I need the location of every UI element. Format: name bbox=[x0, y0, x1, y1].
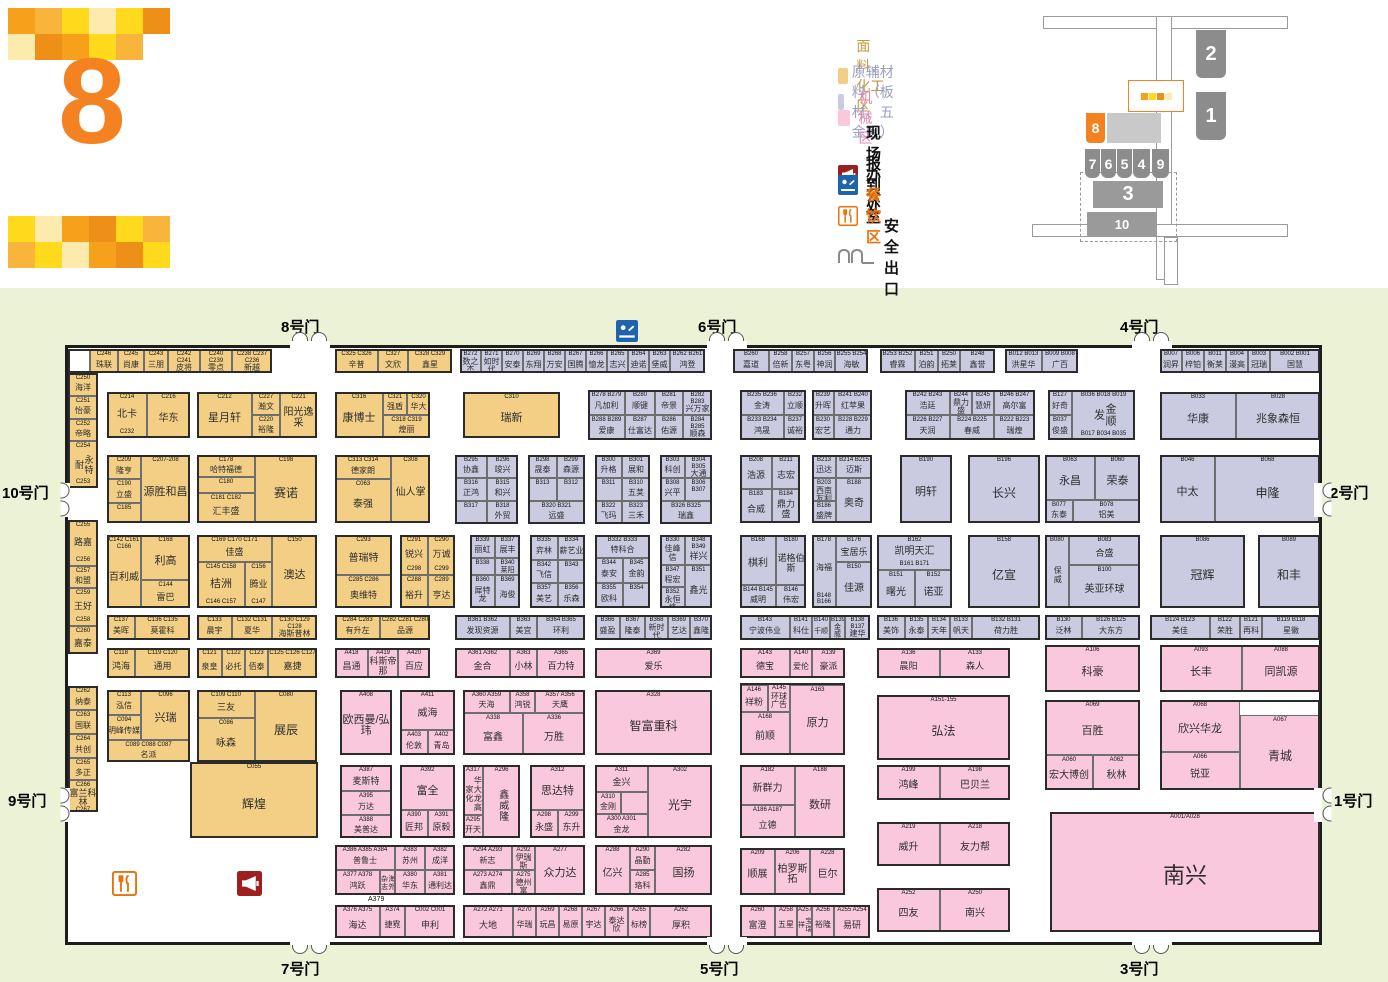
booth-code: C246 bbox=[91, 350, 117, 358]
booth-name: 展和 bbox=[628, 464, 644, 477]
booth-name: 万诚 bbox=[432, 544, 450, 567]
booth-B146: B146伟宏 bbox=[776, 585, 806, 608]
booth-A376: A376 A375海达 bbox=[335, 905, 380, 938]
booth-name: 东升 bbox=[562, 819, 580, 837]
booth-code: C284 C283 bbox=[336, 616, 379, 624]
booth-code: A377 A378 bbox=[336, 871, 379, 879]
booth-B265: B265志兴 bbox=[607, 349, 628, 373]
booth-A060: A060宏大博创 bbox=[1045, 755, 1093, 790]
booth-code: A068 bbox=[1161, 701, 1239, 709]
gate-label-5号门: 5号门 bbox=[700, 958, 738, 979]
booth-A257: A257宝瑞祥 bbox=[797, 905, 812, 938]
booth-code: A390 bbox=[401, 811, 427, 819]
booth-name: 源胜和昌 bbox=[144, 464, 188, 522]
booth-A290: A290晶勤 bbox=[630, 845, 655, 870]
booth-code: B232 bbox=[785, 391, 805, 399]
booth-B248: B248鑫誉 bbox=[960, 349, 995, 373]
booth-code: C308 bbox=[392, 456, 429, 464]
booth-B135: B135永泰 bbox=[905, 615, 928, 640]
booth-B286: B286佑源 bbox=[655, 415, 683, 440]
booth-code: C262 bbox=[69, 687, 97, 695]
booth-code: A270 bbox=[514, 906, 535, 914]
booth-code: C256 bbox=[69, 557, 97, 565]
booth-name: 慧妍 bbox=[975, 399, 991, 414]
booth-name: 鑫誉 bbox=[970, 358, 986, 372]
legend-label: 安全出口 bbox=[884, 215, 899, 299]
booth-name: 佳源 bbox=[844, 571, 864, 607]
booth-C310: C310瑞新 bbox=[463, 392, 560, 438]
booth-name: 东泰 bbox=[1051, 509, 1067, 522]
booth-A069: A069百胜 bbox=[1045, 700, 1140, 755]
booth-name: 路嘉 bbox=[74, 529, 92, 558]
booth-C285: C285 C286奥维特 bbox=[335, 575, 392, 608]
booth-C291: C291锐兴C298 bbox=[400, 535, 428, 575]
booth-B033: B033华康 bbox=[1160, 392, 1236, 440]
booth-name: 富兰科林 bbox=[69, 789, 97, 808]
booth-B251: B251泊韵 bbox=[915, 349, 938, 373]
booth-B126: B126 B125大东方 bbox=[1082, 615, 1140, 640]
booth-code: C327 bbox=[379, 350, 407, 358]
booth-code: B281 bbox=[656, 391, 682, 399]
booth-code: B136 bbox=[878, 616, 904, 624]
booth-name: 宏艺 bbox=[815, 424, 831, 439]
logo-square bbox=[143, 34, 170, 60]
booth-name: 荣泰 bbox=[1107, 464, 1129, 499]
booth-B367: B367隆泰 bbox=[620, 615, 645, 640]
booth-code: C291 bbox=[401, 536, 427, 544]
booth-name: 国腾 bbox=[568, 358, 584, 372]
booth-name: 海洋 bbox=[75, 382, 91, 395]
booth-name: 展辰 bbox=[274, 699, 298, 761]
booth-name: 兴平 bbox=[665, 487, 681, 500]
booth-A420: A420百应 bbox=[398, 648, 430, 678]
booth-name: 腾业 bbox=[249, 571, 267, 600]
logo-square bbox=[143, 8, 170, 34]
booth-B237: B237诚裕 bbox=[784, 415, 806, 440]
booth-name: 同凯源 bbox=[1265, 654, 1298, 691]
booth-name: 宝居乐 bbox=[840, 544, 867, 561]
gate-opening bbox=[290, 937, 330, 945]
booth-B235: B235 B236金涛 bbox=[740, 390, 784, 415]
booth-A317: A317华大龙高家化 bbox=[463, 765, 483, 815]
minimap-hall-3: 3 bbox=[1093, 181, 1163, 208]
booth-code: C109 C110 bbox=[198, 691, 254, 699]
booth-B363: B363美宜 bbox=[510, 615, 537, 640]
booth-name: 玩昌 bbox=[540, 914, 556, 937]
booth-B368: B368新时代 bbox=[645, 615, 668, 640]
booth-B009: B009 B008广百 bbox=[1042, 349, 1078, 373]
booth-code: B006 bbox=[1183, 350, 1203, 358]
booth-name: 保威 bbox=[1053, 544, 1061, 607]
booth-B180: B180诺格伯斯 bbox=[776, 535, 806, 585]
booth-A395: A395万达 bbox=[340, 791, 392, 815]
booth-code: A168 bbox=[741, 713, 789, 721]
booth-name: 秋林 bbox=[1107, 764, 1127, 789]
booth-B258: B258倍新 bbox=[769, 349, 792, 373]
booth-name: 万胜 bbox=[544, 722, 564, 754]
booth-code: B214 B215 bbox=[837, 456, 871, 464]
booth-code: A062 bbox=[1094, 756, 1139, 764]
booth-B122: B122荣胜 bbox=[1210, 615, 1240, 640]
booth-code: C169 C170 C171 bbox=[198, 536, 271, 544]
booth-A228: A228巨尔 bbox=[810, 848, 845, 895]
booth-A312: A312思达特 bbox=[530, 765, 585, 810]
booth-B320: B320 B321远盛 bbox=[528, 501, 585, 524]
booth-name: 瑞新 bbox=[501, 401, 523, 437]
booth-code: A255 A254 bbox=[835, 906, 869, 914]
booth-name: 奥奇 bbox=[844, 487, 864, 522]
booth-code: B311 bbox=[596, 479, 621, 487]
booth-name: 文欣 bbox=[385, 358, 401, 372]
booth-B222: B222 B223瑞煌 bbox=[994, 415, 1035, 440]
booth-B355: B355欧科 bbox=[595, 583, 623, 608]
booth-C168: C168利高 bbox=[141, 535, 190, 580]
booth-name: 华大 bbox=[411, 401, 427, 414]
booth-C255: C255路嘉C256 bbox=[68, 520, 98, 566]
booth-code: C310 bbox=[464, 393, 559, 401]
booth-name: 大地 bbox=[479, 914, 497, 937]
booth-name: 广百 bbox=[1052, 358, 1068, 372]
booth-name: 成洋 bbox=[432, 854, 448, 869]
booth-C265: C265多正 bbox=[68, 758, 98, 780]
booth-code: B263 bbox=[650, 350, 669, 358]
booth-name: 天鹰 bbox=[552, 699, 568, 712]
booth-A145: A145环球广告 bbox=[768, 683, 790, 712]
booth-name: 千顺 bbox=[814, 624, 828, 639]
booth-code: C168 bbox=[142, 536, 189, 544]
booth-code: B246 B247 bbox=[995, 391, 1034, 399]
booth-name: 晶勤 bbox=[635, 854, 651, 869]
gate-label-7号门: 7号门 bbox=[281, 958, 319, 979]
booth-A338: A338富鑫 bbox=[463, 713, 523, 755]
booth-name: 原毅 bbox=[432, 819, 450, 837]
booth-name: 小林 bbox=[514, 657, 532, 677]
booth-code: A311 bbox=[596, 766, 647, 774]
booth-C221: C221阳光逸采 bbox=[280, 392, 317, 438]
booth-name: 嘉泰 bbox=[74, 635, 92, 653]
booth-code: B121 bbox=[1241, 616, 1261, 624]
logo-square bbox=[8, 242, 35, 268]
booth-code: B258 bbox=[770, 350, 791, 358]
booth-B304: B304 B305大通 bbox=[685, 455, 712, 478]
booth-B272: B272数之杰 bbox=[460, 349, 481, 373]
booth-B226: B226 B227天润 bbox=[905, 415, 950, 440]
logo-square bbox=[62, 8, 89, 34]
booth-name: 瑞煌 bbox=[1007, 424, 1023, 439]
booth-B178: B178海福B148 B166 bbox=[812, 535, 836, 608]
booth-name: 金兴 bbox=[612, 774, 630, 791]
logo-square bbox=[89, 216, 116, 242]
booth-name: 锐亚 bbox=[1190, 761, 1210, 789]
booth-code: B295 bbox=[456, 456, 486, 464]
booth-code: A363 bbox=[511, 649, 536, 657]
booth-B316: B316正鸿 bbox=[455, 478, 487, 501]
booth-code: B130 bbox=[1046, 616, 1081, 624]
booth-A062: A062秋林 bbox=[1093, 755, 1140, 790]
booth-name: 迪诺 bbox=[631, 358, 647, 372]
booth-B298: B298晟泰 bbox=[528, 455, 557, 478]
booth-C207-208: C207-208源胜和昌 bbox=[141, 455, 190, 523]
booth-C122: C122必托 bbox=[222, 648, 245, 678]
booth-code: C147 bbox=[246, 599, 271, 607]
booth-B214: B214 B215迈斯 bbox=[836, 455, 872, 478]
booth-code: B287 bbox=[626, 416, 654, 424]
booth-name: 金龙 bbox=[614, 823, 630, 837]
booth-code: C146 C157 bbox=[198, 599, 244, 607]
booth-code: A336 bbox=[524, 714, 584, 722]
booth-name: 嘉捷 bbox=[283, 657, 301, 677]
booth-name: 程宏 bbox=[665, 574, 681, 586]
minimap-hall-7: 7 bbox=[1085, 149, 1100, 178]
booth-code: B143 bbox=[741, 616, 789, 624]
booth-name: 泰达欣 bbox=[606, 914, 627, 937]
booth-B339: B339丽虹 bbox=[470, 535, 495, 558]
booth-B011: B011衡莱 bbox=[1204, 349, 1226, 373]
booth-C150: C150澳达 bbox=[272, 535, 317, 608]
booth-C156: C156腾业C147 bbox=[245, 562, 272, 608]
booth-C327: C327文欣 bbox=[378, 349, 408, 373]
booth-name: 爱乐 bbox=[644, 657, 662, 677]
booth-code: C132 C131 bbox=[233, 616, 271, 624]
booth-name: 西南友利 bbox=[813, 487, 835, 501]
booth-code: A088 bbox=[1243, 646, 1319, 654]
booth-name: 厚积 bbox=[672, 914, 690, 937]
booth-name: 青城 bbox=[1268, 724, 1292, 789]
booth-B139: B139金威龙 bbox=[830, 615, 845, 640]
minimap-road bbox=[1164, 237, 1178, 285]
booth-C257: C257和盟 bbox=[68, 566, 98, 588]
booth-code: A218 bbox=[941, 823, 1009, 831]
booth-B060: B060荣泰 bbox=[1095, 455, 1140, 500]
booth-B152: B152诺亚 bbox=[915, 570, 952, 608]
booth-code: C265 bbox=[69, 759, 97, 767]
booth-name: 友力帮 bbox=[960, 831, 990, 865]
booth-code: B270 bbox=[503, 350, 522, 358]
booth-code: A403 bbox=[401, 731, 427, 739]
booth-A386: A386 A385 A384普鲁士 bbox=[335, 845, 395, 870]
booth-code: B332 B333 bbox=[596, 536, 649, 544]
booth-name: 尚康 bbox=[123, 358, 139, 372]
minimap-hall-4: 4 bbox=[1133, 149, 1150, 178]
booth-code: B299 bbox=[558, 456, 584, 464]
booth-code: C216 bbox=[148, 393, 189, 401]
booth-name: 宝瑞祥 bbox=[797, 914, 812, 937]
booth-name: 泉皇 bbox=[202, 657, 218, 677]
booth-code: C267 bbox=[69, 807, 97, 812]
booth-code: B340 bbox=[496, 559, 519, 567]
booth-name: 德州富 bbox=[513, 879, 534, 895]
booth-code: A228 bbox=[811, 849, 844, 857]
booth-A298: A298永盛 bbox=[530, 810, 558, 838]
gate-opening bbox=[290, 341, 330, 349]
booth-name: 志兴 bbox=[610, 358, 626, 372]
booth-name: 金涛 bbox=[754, 399, 770, 414]
booth-name: 帝略 bbox=[75, 428, 91, 440]
booth-B340: B340莱阳 bbox=[495, 558, 520, 575]
booth-code: A206 bbox=[776, 849, 809, 857]
booth-A282: A282国扬 bbox=[655, 845, 712, 895]
booth-B232: B232立顺 bbox=[784, 390, 806, 415]
booth-C282: C282 C281 C280品源 bbox=[380, 615, 430, 640]
booth-code: B361 B362 bbox=[456, 616, 509, 624]
booth-name: 珞科 bbox=[635, 879, 651, 894]
booth-code: B239 bbox=[813, 391, 833, 399]
booth-name: 科仕 bbox=[793, 624, 809, 639]
booth-code: A257 bbox=[798, 906, 811, 914]
booth-B334: B334薪艺业 bbox=[558, 535, 585, 560]
booth-C262: C262纳泰 bbox=[68, 686, 98, 710]
booth-name: 升格 bbox=[601, 464, 617, 477]
booth-name: 零点 bbox=[208, 364, 224, 372]
logo-square bbox=[35, 216, 62, 242]
booth-A146: A146祥粉 bbox=[740, 685, 768, 712]
booth-name: 威升 bbox=[899, 831, 919, 865]
booth-name: 泰安 bbox=[601, 567, 617, 582]
booth-code: B280 bbox=[626, 391, 654, 399]
booth-code: A143 bbox=[741, 649, 789, 657]
booth-A382: A382成洋 bbox=[425, 845, 455, 870]
booth-code: C119 C120 bbox=[136, 649, 189, 657]
booth-B196: B196长兴 bbox=[968, 455, 1040, 523]
booth-name: 永昌 bbox=[1059, 464, 1081, 499]
booth-A300: A300 A301金龙 bbox=[595, 814, 648, 838]
booth-code: B068 bbox=[1216, 456, 1319, 464]
booth-B299: B299森源 bbox=[557, 455, 585, 478]
booth-name: 如时代 bbox=[482, 358, 501, 373]
booth-name: 众力达 bbox=[544, 854, 577, 894]
booth-name: 通利达 bbox=[428, 879, 452, 894]
booth-code: B303 bbox=[661, 456, 684, 464]
booth-code: C320 bbox=[408, 393, 429, 401]
booth-name: 立德 bbox=[758, 814, 776, 837]
booth-code: B152 bbox=[916, 571, 951, 579]
booth-C246: C246珠联 bbox=[90, 349, 118, 373]
booth-name: 隆亨 bbox=[116, 464, 132, 478]
booth-B347: B347程宏 bbox=[660, 565, 685, 587]
booth-name: 仕富达 bbox=[628, 424, 652, 439]
booth-code: C285 C286 bbox=[336, 576, 391, 584]
booth-B356: B356乐森 bbox=[558, 583, 585, 608]
booth-name: 天年 bbox=[931, 624, 947, 639]
booth-name: 欧科 bbox=[601, 592, 617, 607]
booth-name: 鑫鼎 bbox=[480, 879, 496, 894]
booth-A133: A133森人 bbox=[940, 648, 1010, 678]
booth-code: A198 bbox=[941, 766, 1009, 774]
booth-name: 皮将 bbox=[176, 364, 192, 372]
booth-code: B347 bbox=[661, 566, 684, 574]
logo-square bbox=[62, 242, 89, 268]
booth-B260: B260嘉道 bbox=[733, 349, 769, 373]
booth-C313: C313 C314德家朗 bbox=[335, 455, 391, 479]
booth-code: A252 bbox=[878, 889, 939, 897]
booth-name: 和丰 bbox=[1277, 544, 1301, 607]
booth-code: A387 bbox=[341, 766, 391, 774]
booth-code: A402 bbox=[429, 731, 454, 739]
booth-name: 新时代 bbox=[646, 624, 667, 640]
booth-C290: C290万诚C299 bbox=[428, 535, 455, 575]
booth-name: 海斯普林 bbox=[279, 630, 311, 639]
booth-code: C255 bbox=[69, 521, 97, 529]
booth-B351: B351鑫光 bbox=[685, 565, 712, 608]
booth-name: 阳光逸采 bbox=[281, 401, 316, 437]
booth-C137: C137美晖 bbox=[107, 615, 135, 640]
booth-B287: B287仕富达 bbox=[625, 415, 655, 440]
booth-code: B245 bbox=[973, 391, 993, 399]
booth-name: 强盾 bbox=[387, 401, 403, 414]
booth-name: 星月轩 bbox=[208, 401, 241, 437]
booth-code: B312 bbox=[558, 479, 584, 487]
booth-C118: C118鸿海 bbox=[107, 648, 135, 678]
booth-code: B286 bbox=[656, 416, 682, 424]
booth-name: 欣兴华龙 bbox=[1178, 709, 1222, 751]
booth-name: 泓信 bbox=[116, 699, 132, 714]
booth-code: C298 bbox=[401, 566, 427, 574]
booth-B300: B300升格 bbox=[595, 455, 622, 478]
booth-code: B124 B123 bbox=[1151, 616, 1209, 624]
booth-code: C288 bbox=[401, 576, 427, 584]
booth-B124: B124 B123美佳 bbox=[1150, 615, 1210, 640]
booth-code: A361 A362 bbox=[456, 649, 509, 657]
booth-name: 品源 bbox=[397, 624, 413, 639]
booth-name: 大通 bbox=[691, 470, 707, 478]
booth-name: 犀特龙 bbox=[471, 584, 494, 607]
booth-A381: A381通利达 bbox=[425, 870, 455, 895]
booth-B311: B311 bbox=[595, 478, 622, 501]
booth-C185: C185 bbox=[107, 503, 141, 523]
booth-code: C290 bbox=[429, 536, 454, 544]
booth-A390: A390匠邦 bbox=[400, 810, 428, 838]
booth-name: 五荚 bbox=[628, 487, 644, 500]
gate-label-10号门: 10号门 bbox=[2, 482, 49, 503]
booth-name: 光宇 bbox=[668, 774, 692, 837]
logo-square bbox=[8, 216, 35, 242]
booth-code: C254 bbox=[69, 442, 97, 450]
booth-name: 威海 bbox=[418, 699, 438, 729]
booth-code: B339 bbox=[471, 536, 494, 544]
booth-name: 外贸 bbox=[495, 510, 511, 523]
booth-code: A365 bbox=[538, 649, 584, 657]
booth-code: A145 bbox=[769, 684, 789, 692]
booth-B080: B080保威 bbox=[1045, 535, 1069, 608]
booth-A218: A218友力帮 bbox=[940, 822, 1010, 866]
booth-A266: A266泰达欣 bbox=[605, 905, 628, 938]
booth-name: 佳盛 bbox=[225, 544, 243, 561]
booth-code: A380 bbox=[396, 871, 424, 879]
booth-name: 建华 bbox=[850, 630, 866, 639]
booth-name: 新志 bbox=[480, 854, 496, 869]
booth-name: 鸿晟 bbox=[754, 424, 770, 439]
booth-A136: A136晨阳 bbox=[877, 648, 940, 678]
booth-A418: A418昌通 bbox=[335, 648, 368, 678]
door-swing-icon bbox=[1323, 483, 1332, 499]
booth-B140: B140千顺 bbox=[812, 615, 830, 640]
booth-B151: B151曙光 bbox=[877, 570, 915, 608]
booth-B188: B188奥奇 bbox=[836, 478, 872, 523]
booth-code: B190 bbox=[901, 456, 951, 464]
booth-code: B343 bbox=[559, 561, 584, 569]
booth-B136: B136美饰 bbox=[877, 615, 905, 640]
booth-B250: B250拓莱 bbox=[938, 349, 960, 373]
booth-name: 雷巴 bbox=[156, 589, 174, 607]
booth-name: 宇达 bbox=[586, 914, 602, 937]
booth-code: B012 B013 bbox=[1006, 350, 1041, 358]
booth-code: B268 bbox=[545, 350, 564, 358]
booth-name: 国扬 bbox=[673, 854, 695, 894]
booth-code: C150 bbox=[273, 536, 316, 544]
booth-code: B133 bbox=[951, 616, 971, 624]
booth-code: B310 bbox=[623, 479, 649, 487]
booth-code: C125 C126 C127 bbox=[269, 649, 316, 657]
